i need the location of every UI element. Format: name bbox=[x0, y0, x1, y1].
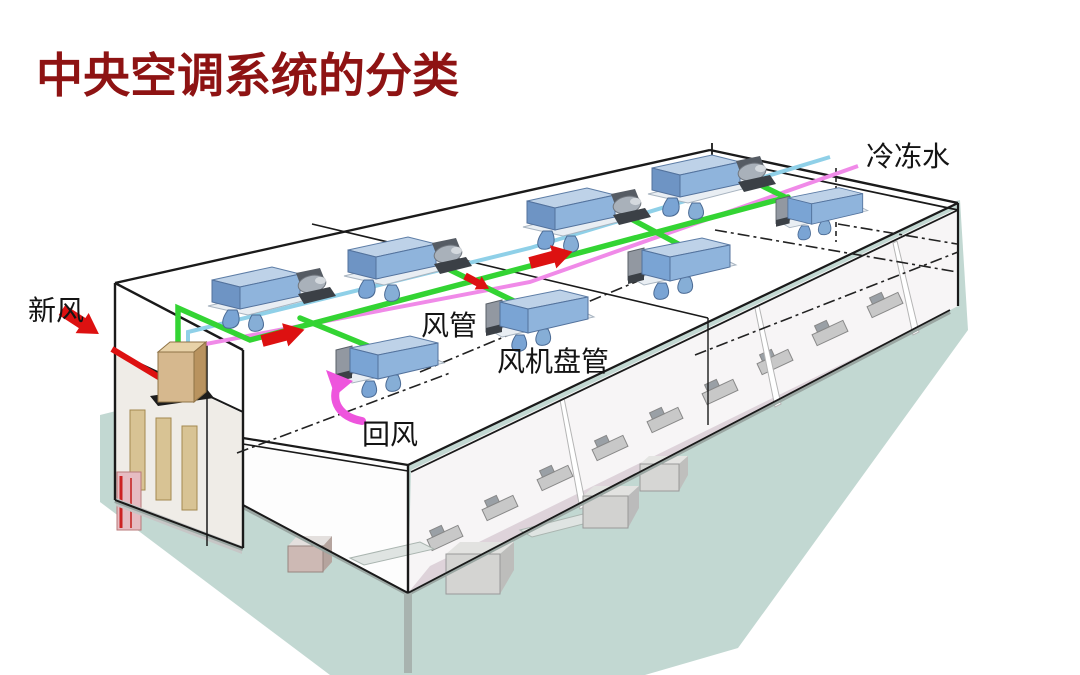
label-return-air: 回风 bbox=[362, 418, 418, 451]
slide: 冷冻水 新风 风管 风机盘管 回风 中央空调系统的分类 bbox=[0, 0, 1080, 675]
label-fan-coil-unit: 风机盘管 bbox=[497, 345, 609, 378]
hvac-building-diagram: 冷冻水 新风 风管 风机盘管 回风 中央空调系统的分类 bbox=[0, 0, 1080, 675]
page-title: 中央空调系统的分类 bbox=[36, 49, 459, 104]
label-air-duct: 风管 bbox=[421, 309, 477, 342]
corner-post bbox=[404, 593, 412, 673]
fresh-air-unit bbox=[150, 342, 214, 406]
label-chilled-water: 冷冻水 bbox=[866, 140, 950, 173]
label-fresh-air: 新风 bbox=[28, 294, 84, 327]
